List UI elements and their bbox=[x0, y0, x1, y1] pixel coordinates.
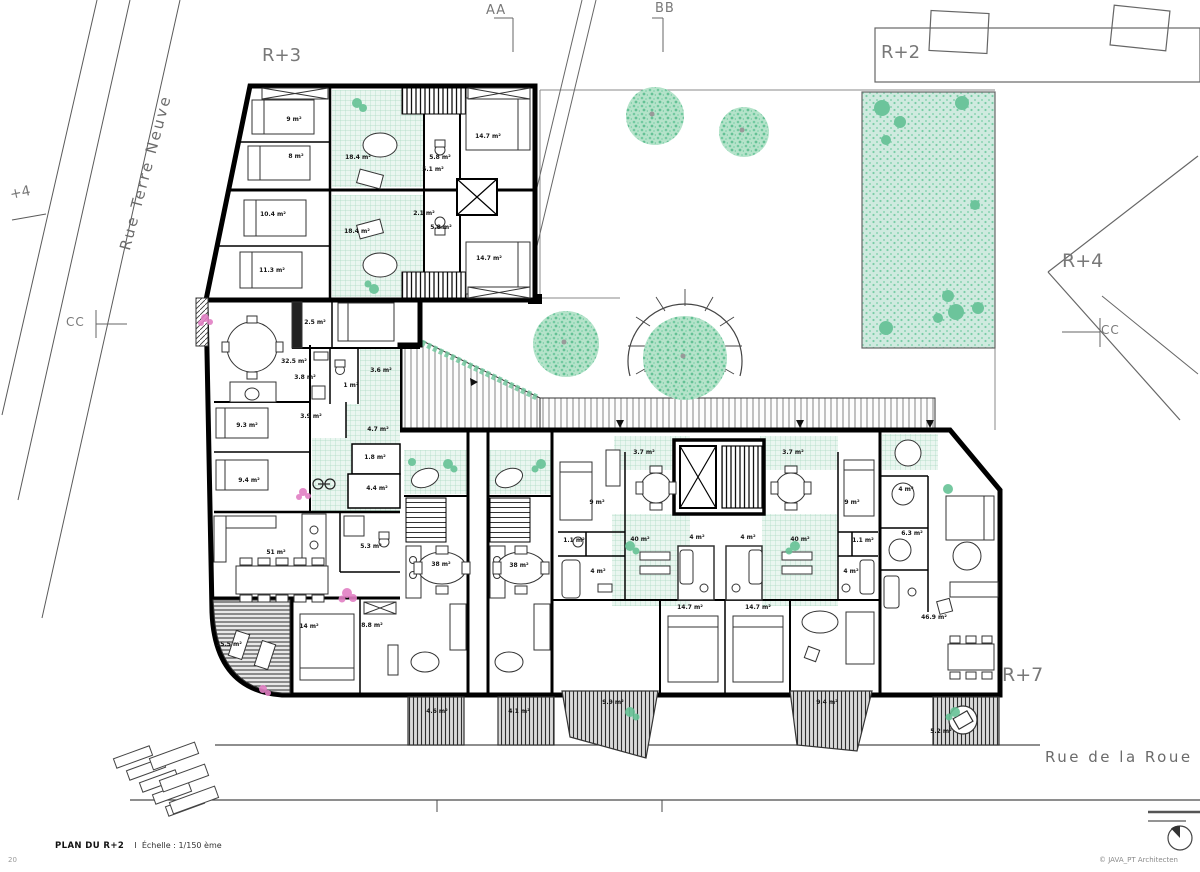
title-block: PLAN DU R+2 I Échelle : 1/150 ème bbox=[55, 833, 222, 852]
copyright: © JAVA_PT Architecten bbox=[1099, 856, 1178, 864]
stairs bbox=[722, 446, 762, 508]
room-label-bedroom-8-8m2: 8.8 m² bbox=[361, 623, 383, 629]
room-label-bedroom-14-7m2: 14.7 m² bbox=[677, 605, 703, 611]
room-label-wc-2-1m2: 2.1 m² bbox=[413, 211, 435, 217]
room-label-balcony-9-9m2: 9.9 m² bbox=[602, 700, 624, 706]
room-label-patio-40m2: 40 m² bbox=[630, 537, 649, 543]
room-label-living-38m2: 38 m² bbox=[509, 563, 528, 569]
room-label-bath-4-4m2: 4.4 m² bbox=[366, 486, 388, 492]
garden bbox=[862, 92, 995, 348]
floor-plan-page: Rue Terre Neuve Rue de la Roue AA BB CC … bbox=[0, 0, 1200, 872]
room-label-bedroom-9-4m2: 9.4 m² bbox=[238, 478, 260, 484]
room-label-living-32-5m2: 32.5 m² bbox=[281, 359, 307, 365]
stairs bbox=[402, 272, 466, 298]
room-label-bedroom-14-7m2: 14.7 m² bbox=[476, 256, 502, 262]
tree bbox=[643, 316, 727, 400]
context-label-r3: R+3 bbox=[262, 47, 301, 65]
room-label-bath-4m2: 4 m² bbox=[740, 535, 755, 541]
street-left bbox=[2, 0, 180, 618]
room-label-bath-5-8m2: 5.8 m² bbox=[429, 155, 451, 161]
trees bbox=[533, 87, 769, 400]
room-label-bedroom-14m2: 14 m² bbox=[299, 624, 318, 630]
room-label-bath-4m2: 4 m² bbox=[590, 569, 605, 575]
building-main-block bbox=[196, 298, 1000, 695]
elevator-icon bbox=[680, 446, 716, 508]
tree bbox=[719, 107, 769, 157]
section-marker-aa: AA bbox=[486, 4, 506, 17]
room-label-living-46-9m2: 46.9 m² bbox=[921, 615, 947, 621]
room-label-living-51m2: 51 m² bbox=[266, 550, 285, 556]
tree bbox=[626, 87, 684, 145]
tree bbox=[533, 311, 599, 377]
room-label-wc-1-1m2: 1.1 m² bbox=[852, 538, 874, 544]
section-marker-cc-left: CC bbox=[66, 316, 85, 328]
room-label-terrace-3-7m2: 3.7 m² bbox=[633, 450, 655, 456]
context-label-r7: R+7 bbox=[1002, 666, 1043, 685]
room-label-bath-4m2: 4 m² bbox=[843, 569, 858, 575]
building-north-block bbox=[206, 86, 535, 300]
room-label-room-3-9m2: 3.9 m² bbox=[300, 414, 322, 420]
room-label-bath-5-3m2: 5.3 m² bbox=[360, 544, 382, 550]
north-compass-icon bbox=[1168, 826, 1192, 850]
page-number: 20 bbox=[8, 856, 17, 864]
room-label-bedroom-11-3m2: 11.3 m² bbox=[259, 268, 285, 274]
room-label-bedroom-14-7m2: 14.7 m² bbox=[475, 134, 501, 140]
room-label-living-38m2: 38 m² bbox=[431, 562, 450, 568]
room-label-bath-5-8m2: 5.8 m² bbox=[430, 225, 452, 231]
room-label-bath-5-1m2: 5.1 m² bbox=[422, 167, 444, 173]
stairs bbox=[406, 498, 446, 542]
room-label-bedroom-8m2: 8 m² bbox=[288, 154, 303, 160]
section-marker-bb: BB bbox=[655, 2, 675, 15]
context-label-r2: R+2 bbox=[881, 44, 920, 62]
room-label-room-4m2: 4 m² bbox=[898, 487, 913, 493]
room-label-wc-1m2: 1 m² bbox=[343, 383, 358, 389]
title-separator: I bbox=[134, 841, 136, 850]
plan-title: PLAN DU R+2 bbox=[55, 841, 124, 851]
stairs bbox=[402, 88, 466, 114]
room-label-bath-3-8m2: 3.8 m² bbox=[294, 375, 316, 381]
room-label-balcony-9-4m2: 9.4 m² bbox=[816, 700, 838, 706]
room-label-bedroom-6-3m2: 6.3 m² bbox=[901, 531, 923, 537]
room-label-balcony-4-1m2: 4.1 m² bbox=[508, 709, 530, 715]
room-label-patio-40m2: 40 m² bbox=[790, 537, 809, 543]
room-label-bedroom-9m2: 9 m² bbox=[589, 500, 604, 506]
room-label-closet-2-5m2: 2.5 m² bbox=[304, 320, 326, 326]
room-label-living-18-4m2: 18.4 m² bbox=[344, 229, 370, 235]
room-label-hall-4-7m2: 4.7 m² bbox=[367, 427, 389, 433]
room-label-bath-4m2: 4 m² bbox=[689, 535, 704, 541]
street-bottom bbox=[130, 745, 1200, 812]
room-label-terrace-3-7m2: 3.7 m² bbox=[782, 450, 804, 456]
stairs bbox=[490, 498, 530, 542]
room-label-balcony-15-5m2: 15.5 m² bbox=[216, 642, 242, 648]
room-label-balcony-5-2m2: 5.2 m² bbox=[930, 729, 952, 735]
scale-label: Échelle : 1/150 ème bbox=[142, 841, 222, 850]
floor-plan-drawing bbox=[0, 0, 1200, 872]
room-label-bedroom-10-4m2: 10.4 m² bbox=[260, 212, 286, 218]
scale-bars bbox=[1148, 812, 1200, 821]
room-label-wc-1-1m2: 1.1 m² bbox=[563, 538, 585, 544]
elevator-icon bbox=[457, 179, 497, 215]
room-label-balcony-4-6m2: 4.6 m² bbox=[426, 709, 448, 715]
balconies bbox=[408, 691, 999, 758]
section-marker-cc-right: CC bbox=[1101, 324, 1120, 336]
room-label-wc-1-8m2: 1.8 m² bbox=[364, 455, 386, 461]
context-label-r4: R+4 bbox=[1062, 252, 1103, 271]
room-label-storage-3-6m2: 3.6 m² bbox=[370, 368, 392, 374]
room-label-bedroom-9-3m2: 9.3 m² bbox=[236, 423, 258, 429]
room-label-living-18-4m2: 18.4 m² bbox=[345, 155, 371, 161]
context-label-plus4: +4 bbox=[9, 184, 32, 202]
room-label-bedroom-14-7m2: 14.7 m² bbox=[745, 605, 771, 611]
street-name-bottom: Rue de la Roue bbox=[1045, 750, 1193, 765]
circulation-core bbox=[674, 440, 764, 514]
room-label-bedroom-9m2: 9 m² bbox=[844, 500, 859, 506]
room-label-bedroom-9m2: 9 m² bbox=[286, 117, 301, 123]
